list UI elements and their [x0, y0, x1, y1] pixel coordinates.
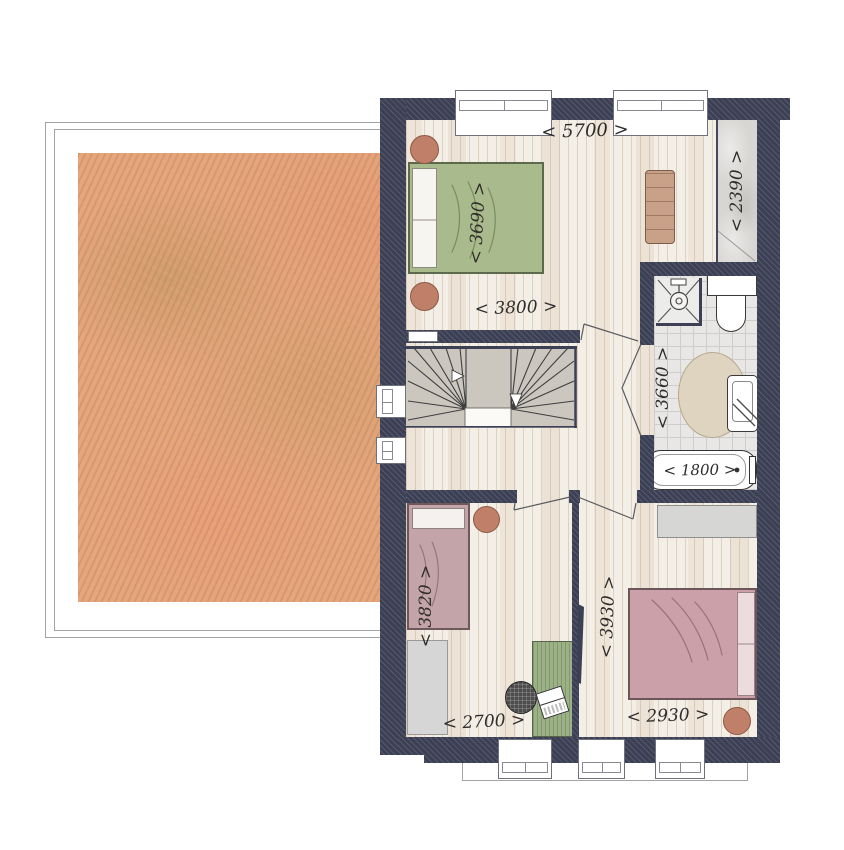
dim-3820: < 3820 > [416, 565, 436, 648]
dim-3660: < 3660 > [653, 347, 673, 430]
shower [656, 278, 702, 326]
floor-plan-canvas: < 5700 > < 2390 > < 3690 > < 3800 > < 36… [0, 0, 844, 850]
dim-2390: < 2390 > [727, 150, 747, 233]
dim-2930: < 2930 > [626, 705, 709, 728]
pink-bed-strokes [652, 598, 722, 662]
dim-3930: < 3930 > [597, 575, 620, 658]
annotation-overlay [0, 0, 844, 850]
dim-5700: < 5700 > [541, 119, 629, 143]
dim-1800: < 1800 > [663, 460, 736, 479]
door-leaf [577, 604, 584, 684]
dim-3800: < 3800 > [474, 297, 557, 320]
door-swings [514, 324, 641, 519]
